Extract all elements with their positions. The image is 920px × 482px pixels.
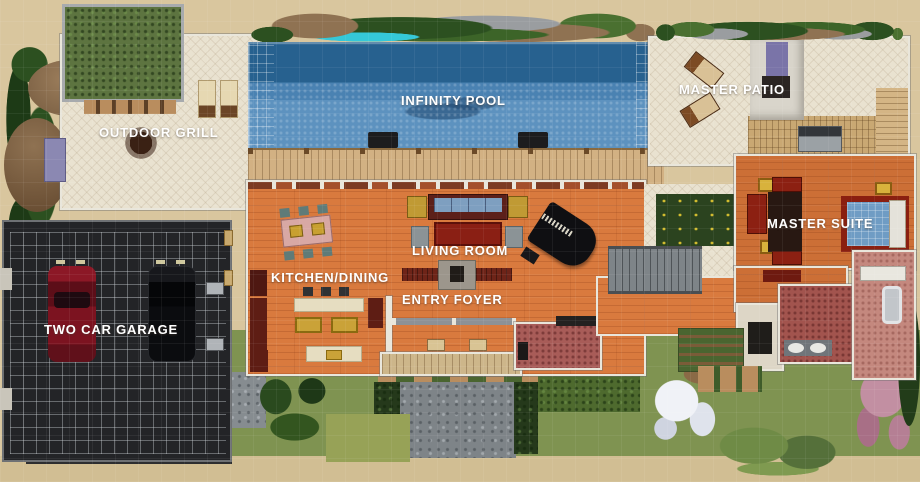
porch-column: [427, 339, 445, 351]
pool-tile-edge-left: [248, 42, 274, 154]
black-car: [148, 266, 196, 362]
gold-placemat: [311, 222, 325, 235]
red-car-windshield: [54, 292, 90, 308]
garage: [2, 220, 232, 462]
wardrobe: [748, 322, 772, 354]
vanity-counter: [860, 266, 906, 281]
bar-stool: [303, 287, 313, 296]
wall-cabinet: [206, 338, 224, 351]
tree-cluster-by-garage: [250, 368, 336, 450]
den-room: [516, 324, 600, 368]
sitting-sofa: [747, 194, 767, 234]
label-two-car-garage: TWO CAR GARAGE: [44, 322, 178, 337]
bar-stool: [339, 287, 349, 296]
suite-dresser: [763, 270, 801, 282]
garden-planter-strip: [84, 100, 176, 114]
pergola-right-panel: [876, 88, 908, 164]
label-outdoor-grill: OUTDOOR GRILL: [99, 125, 218, 140]
courtyard-hedge: [656, 194, 744, 246]
gold-rug: [295, 317, 322, 333]
garage-step: [224, 270, 233, 286]
label-kitchen-dining: KITCHEN/DINING: [271, 270, 389, 285]
dining-chair: [317, 204, 328, 214]
garage-left-fixture: [0, 268, 12, 290]
bed-lamp: [875, 182, 892, 195]
bathtub: [882, 286, 902, 324]
kitchen-counter-maroon: [250, 350, 268, 372]
deck-bench: [368, 132, 398, 148]
gold-placemat: [289, 225, 303, 238]
dining-chair: [279, 208, 290, 218]
bath-sink: [810, 343, 826, 353]
bbq-grill: [798, 126, 842, 152]
label-living-room: LIVING ROOM: [412, 243, 508, 258]
dining-set: [273, 203, 342, 263]
porch-column: [469, 339, 487, 351]
label-entry-foyer: ENTRY FOYER: [402, 292, 503, 307]
kitchen-counter-maroon: [250, 298, 267, 350]
parking-mark: [156, 260, 165, 264]
floorplan-screenshot: OUTDOOR GRILL INFINITY POOL MASTER PATIO…: [0, 0, 920, 482]
foyer-wall-band: [392, 318, 516, 325]
hedge-walkway-right: [514, 382, 538, 454]
gold-rug: [331, 317, 358, 333]
house-top-wall: [248, 182, 644, 189]
parking-mark: [56, 260, 65, 264]
parking-mark: [76, 260, 85, 264]
fireplace-firebox: [450, 266, 464, 282]
label-master-suite: MASTER SUITE: [767, 216, 873, 231]
kitchen-island: [294, 298, 364, 312]
red-car: [48, 266, 96, 362]
sitting-sofa: [772, 177, 802, 192]
hearth-brick: [402, 268, 438, 281]
label-master-patio: MASTER PATIO: [679, 82, 785, 97]
bath-sink: [788, 343, 804, 353]
lounge-chair: [220, 80, 238, 118]
hearth-brick: [476, 268, 512, 281]
garage-left-fixture: [0, 388, 12, 410]
fireplace-purple-panel: [766, 42, 788, 78]
front-walkway: [398, 382, 516, 458]
gold-armchair: [508, 196, 528, 218]
deck-bench: [518, 132, 548, 148]
label-infinity-pool: INFINITY POOL: [401, 93, 506, 108]
dining-chair: [322, 247, 333, 257]
green-tree-bottom: [698, 416, 858, 482]
gold-rug-small: [326, 350, 342, 360]
kitchen-counter-maroon: [368, 298, 383, 328]
bed-pillows: [889, 200, 906, 248]
lounge-chair: [198, 80, 216, 118]
media-console-glass: [434, 198, 502, 212]
garage-step: [224, 230, 233, 246]
planter-squares: [698, 366, 762, 392]
dining-chair: [298, 206, 309, 216]
den-desk: [556, 316, 598, 326]
dining-chair: [284, 251, 295, 261]
bar-stool: [321, 287, 331, 296]
pool-deck-posts: [248, 148, 664, 154]
front-porch: [382, 354, 520, 374]
kitchen-counter-maroon: [250, 270, 267, 296]
garden-bed-topleft: [62, 4, 184, 102]
parking-mark: [176, 260, 185, 264]
gold-armchair: [407, 196, 427, 218]
den-tv: [518, 342, 528, 360]
grass-light-patch: [326, 414, 410, 462]
wall-cabinet: [206, 282, 224, 295]
purple-bench: [44, 138, 66, 182]
dining-table: [280, 215, 333, 248]
dining-chair: [303, 249, 314, 259]
sitting-sofa: [772, 251, 802, 265]
staircase: [608, 246, 702, 294]
